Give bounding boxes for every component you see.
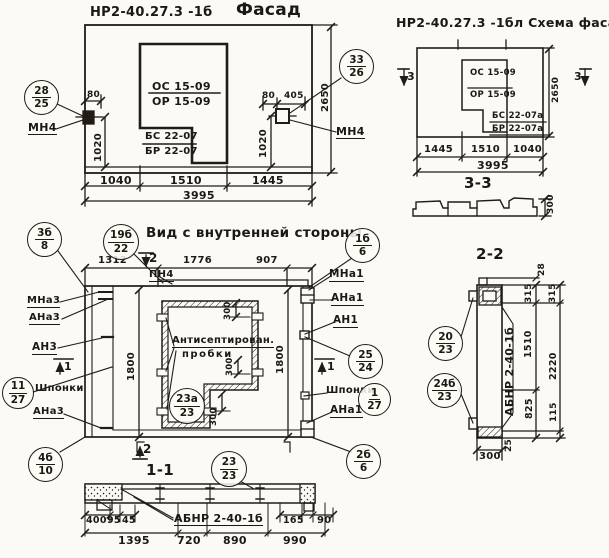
dim-400: 400: [86, 516, 107, 526]
section-mark-3-left: 3: [407, 71, 415, 82]
an3-label: АН3: [32, 342, 57, 355]
dim-3995-scheme: 3995: [477, 160, 509, 171]
drawing-linework: [0, 0, 609, 558]
facade-sill-mark-bs: БС 22-07: [145, 132, 198, 142]
callout-1b-6: 1б6: [345, 228, 380, 263]
facade-anchor-label-left: МН4: [28, 122, 57, 135]
section-mark-1-right: 1: [327, 361, 335, 372]
panel-mark-1-1: АБНР 2-40-1б: [174, 513, 263, 526]
callout-top: 11: [9, 380, 28, 394]
dim-405: 405: [284, 92, 304, 101]
dim-315-b: 315: [549, 283, 558, 303]
ana3-bottom-label: АНа3: [33, 407, 64, 419]
dim-907: 907: [256, 256, 278, 266]
callout-top: 25: [356, 349, 375, 363]
facade-window-mark-op: ОР 15-09: [152, 96, 211, 107]
section-mark-2-top: 2: [149, 252, 158, 264]
dim-2650-facade: 2650: [321, 83, 331, 112]
callout-bottom: 6: [357, 246, 368, 259]
panel-mark-2-2: АБНР 2-40-1б: [504, 327, 515, 416]
callout-bottom: 23: [220, 470, 239, 483]
callout-top: 4б: [36, 452, 55, 466]
dim-115: 115: [550, 402, 559, 422]
callout-bottom: 23: [178, 407, 197, 420]
dim-3995-facade: 3995: [183, 190, 215, 201]
shponki-left-label: Шпонки: [35, 384, 84, 394]
dim-1510-sec22: 1510: [524, 330, 534, 358]
section-mark-1-left: 1: [64, 361, 72, 372]
callout-2b-6: 2б6: [346, 444, 381, 479]
dim-90: 90: [317, 516, 332, 526]
dim-1020-right: 1020: [259, 129, 269, 158]
callout-top: 33: [347, 54, 366, 68]
callout-20-23: 2023: [428, 326, 463, 361]
callout-bottom: 26: [347, 67, 366, 80]
dim-1445-scheme: 1445: [424, 145, 453, 155]
dim-300-profile: 300: [547, 194, 556, 214]
callout-top: 28: [32, 85, 51, 99]
callout-33-26: 3326: [339, 49, 374, 84]
callout-top: 1б: [353, 233, 372, 247]
dim-890: 890: [223, 535, 247, 546]
dim-300-plug-bottom: 300: [210, 407, 219, 426]
an1-label: АН1: [333, 315, 358, 328]
dim-1020-left: 1020: [94, 133, 104, 162]
scheme-sill-mark-bs: БС 22-07а: [492, 112, 543, 121]
dim-28: 28: [538, 263, 547, 276]
ana3-label: АНа3: [29, 313, 60, 325]
callout-25-24: 2524: [348, 344, 383, 379]
dim-2220: 2220: [549, 352, 559, 380]
callout-bottom: 23: [435, 391, 454, 404]
facade-sill-mark-br: БР 22-07: [145, 147, 198, 157]
callout-bottom: 24: [356, 362, 375, 375]
section-1-1-linework: [85, 481, 333, 536]
callout-24b-23: 24б23: [427, 373, 462, 408]
dim-1040-scheme: 1040: [513, 145, 542, 155]
facade-title-code: НР2-40.27.3 -1б: [90, 6, 213, 19]
dim-990: 990: [283, 535, 307, 546]
section-mark-3-right: 3: [574, 71, 582, 82]
callout-28-25: 2825: [24, 80, 59, 115]
callout-23-23: 2323: [211, 451, 247, 487]
section-3-3-label: 3-3: [464, 176, 492, 191]
callout-23a-23: 23а23: [169, 388, 205, 424]
callout-11-27: 1127: [2, 377, 34, 409]
inner-view-title: Вид с внутренней стороны: [146, 227, 362, 241]
ana1-label: АНа1: [331, 293, 364, 306]
dim-315-a: 315: [525, 283, 534, 303]
callout-bottom: 6: [358, 462, 369, 475]
dim-1800-left: 1800: [127, 352, 137, 381]
scheme-sill-mark-br: БР 22-07а: [492, 125, 543, 134]
callout-bottom: 8: [39, 240, 50, 253]
callout-bottom: 27: [9, 394, 28, 407]
callout-bottom: 27: [365, 400, 384, 413]
callout-top: 2б: [354, 449, 373, 463]
dim-1040: 1040: [100, 175, 132, 186]
callout-bottom: 25: [32, 98, 51, 111]
callout-top: 1: [369, 387, 380, 401]
callout-top: 19б: [108, 229, 134, 243]
mna3-label: МНа3: [27, 296, 60, 308]
dim-80-left: 80: [87, 91, 100, 100]
dim-1395: 1395: [118, 535, 150, 546]
dim-1776: 1776: [183, 256, 212, 266]
section-mark-2-bottom: 2: [143, 443, 152, 455]
dim-300-plug-mid: 300: [226, 357, 235, 376]
facade-anchor-label-right: МН4: [336, 126, 365, 139]
callout-top: 20: [436, 331, 455, 345]
dim-1510-scheme: 1510: [471, 145, 500, 155]
dim-80-right: 80: [262, 92, 275, 101]
callout-19b-22: 19б22: [103, 224, 139, 260]
drawing-sheet: НР2-40.27.3 -1б Фасад ОС 15-09 ОР 15-09 …: [0, 0, 609, 558]
dim-1800-right: 1800: [276, 345, 286, 374]
pn4-label: ПН4: [149, 270, 174, 282]
scheme-title: НР2-40.27.3 -1бл Схема фасада: [396, 17, 609, 30]
dim-1510-facade: 1510: [170, 175, 202, 186]
facade-title: Фасад: [236, 2, 301, 19]
ana1-bottom-label: АНа1: [330, 405, 363, 418]
dim-720: 720: [177, 535, 201, 546]
callout-top: 24б: [432, 378, 458, 392]
callout-4b-10: 4б10: [28, 447, 63, 482]
callout-top: 23: [220, 456, 239, 470]
dim-45: 45: [122, 516, 136, 526]
section-1-1-label: 1-1: [146, 463, 174, 478]
callout-3b-8: 3б8: [27, 222, 62, 257]
dim-300-sec22: 300: [479, 452, 501, 462]
section-2-2-title: 2-2: [476, 247, 504, 262]
callout-bottom: 23: [436, 344, 455, 357]
dim-165: 165: [283, 516, 304, 526]
scheme-window-mark-op: ОР 15-09: [470, 91, 516, 100]
callout-top: 23а: [174, 393, 200, 407]
scheme-window-mark-oc: ОС 15-09: [470, 69, 516, 78]
mna1-label: МНа1: [329, 269, 364, 282]
facade-window-mark-oc: ОС 15-09: [152, 81, 211, 92]
dim-95: 95: [107, 516, 121, 526]
dim-825: 825: [525, 398, 535, 419]
dim-2650-scheme: 2650: [552, 77, 561, 103]
dim-25: 25: [505, 439, 514, 452]
callout-bottom: 10: [36, 465, 55, 478]
callout-top: 3б: [35, 227, 54, 241]
callout-bottom: 22: [112, 243, 131, 256]
callout-1-27: 127: [358, 383, 391, 416]
plugs-note-line1: Антисептирован.: [172, 336, 274, 348]
dim-300-plug-top: 300: [224, 301, 233, 320]
dim-1445-facade: 1445: [252, 175, 284, 186]
